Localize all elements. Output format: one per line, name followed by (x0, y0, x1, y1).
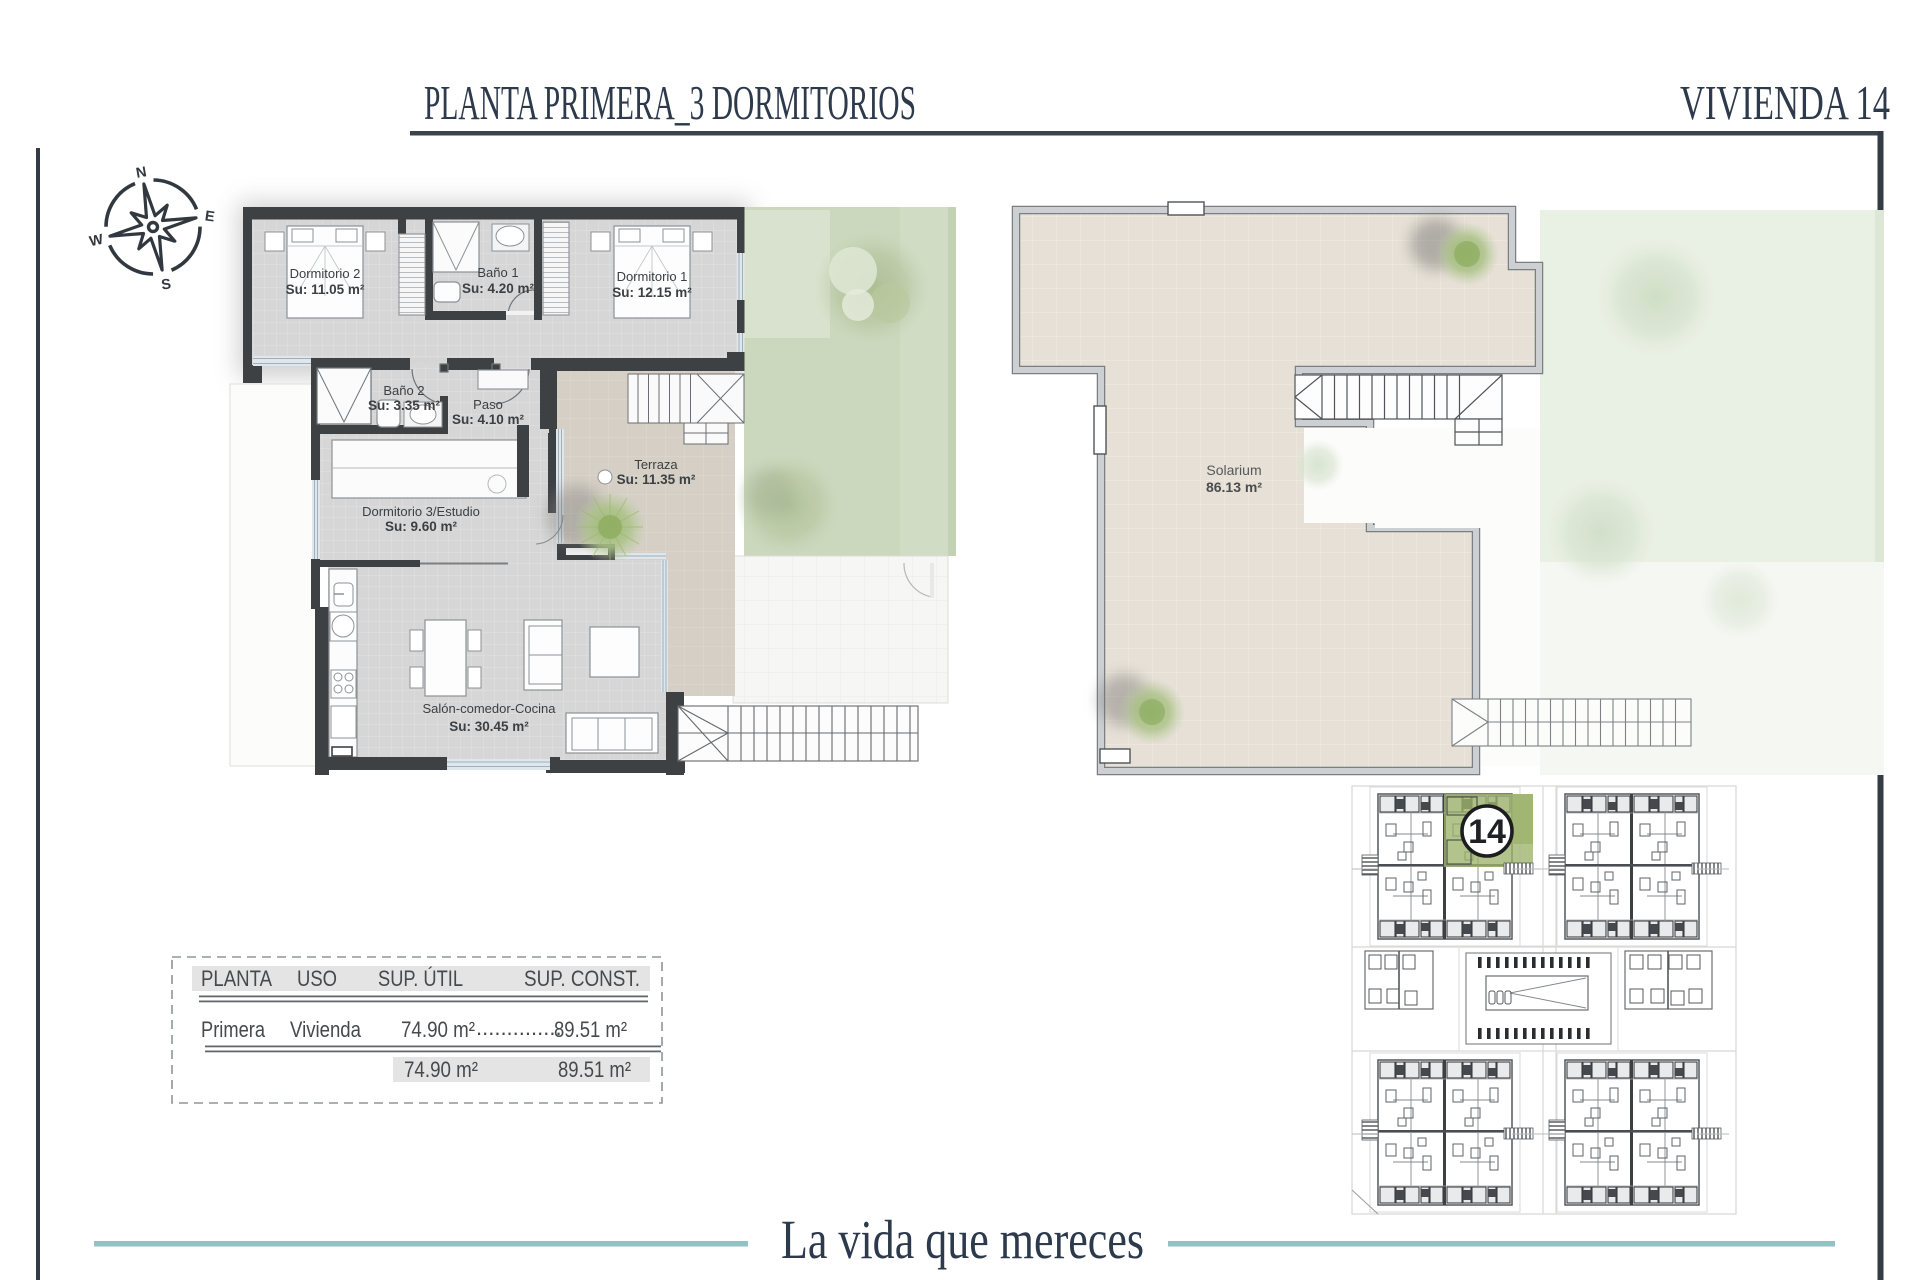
svg-text:14: 14 (1468, 813, 1506, 851)
svg-text:74.90 m²: 74.90 m² (401, 1017, 475, 1042)
svg-text:VIVIENDA 14: VIVIENDA 14 (1680, 75, 1890, 130)
svg-text:USO: USO (297, 966, 337, 991)
svg-text:Solarium: Solarium (1206, 462, 1261, 478)
svg-text:N: N (135, 164, 148, 182)
svg-text:Baño 2: Baño 2 (383, 383, 424, 398)
svg-text:..............: .............. (476, 1015, 562, 1040)
svg-text:SUP. CONST.: SUP. CONST. (524, 966, 640, 991)
svg-text:Baño 1: Baño 1 (477, 265, 518, 280)
svg-text:PLANTA: PLANTA (201, 966, 272, 991)
svg-text:Primera: Primera (201, 1017, 266, 1042)
svg-text:86.13 m²: 86.13 m² (1206, 479, 1262, 495)
svg-text:W: W (88, 232, 105, 251)
svg-text:Dormitorio 2: Dormitorio 2 (290, 266, 361, 281)
svg-text:Su: 11.05 m²: Su: 11.05 m² (286, 282, 365, 297)
svg-text:Salón-comedor-Cocina: Salón-comedor-Cocina (423, 701, 557, 716)
svg-text:SUP. ÚTIL: SUP. ÚTIL (378, 966, 463, 991)
svg-text:Su: 11.35 m²: Su: 11.35 m² (617, 472, 696, 487)
svg-text:Dormitorio 1: Dormitorio 1 (617, 269, 688, 284)
svg-text:89.51 m²: 89.51 m² (558, 1057, 631, 1082)
svg-text:Su: 3.35 m²: Su: 3.35 m² (368, 398, 441, 413)
svg-text:E: E (204, 208, 216, 225)
svg-text:Su: 4.10 m²: Su: 4.10 m² (452, 412, 525, 427)
svg-text:Paso: Paso (473, 397, 503, 412)
svg-text:Su: 4.20 m²: Su: 4.20 m² (462, 281, 535, 296)
svg-text:Su: 30.45 m²: Su: 30.45 m² (449, 719, 529, 734)
svg-text:La vida que mereces: La vida que mereces (781, 1209, 1144, 1270)
svg-text:Terraza: Terraza (634, 457, 678, 472)
svg-text:Vivienda: Vivienda (290, 1017, 362, 1042)
svg-text:Dormitorio 3/Estudio: Dormitorio 3/Estudio (362, 504, 480, 519)
svg-text:89.51 m²: 89.51 m² (554, 1017, 627, 1042)
svg-text:Su: 12.15 m²: Su: 12.15 m² (612, 285, 692, 300)
svg-text:S: S (160, 276, 172, 293)
svg-text:74.90 m²: 74.90 m² (404, 1057, 478, 1082)
svg-text:Su: 9.60 m²: Su: 9.60 m² (385, 519, 458, 534)
svg-text:PLANTA PRIMERA_3 DORMITORIOS: PLANTA PRIMERA_3 DORMITORIOS (424, 75, 916, 130)
